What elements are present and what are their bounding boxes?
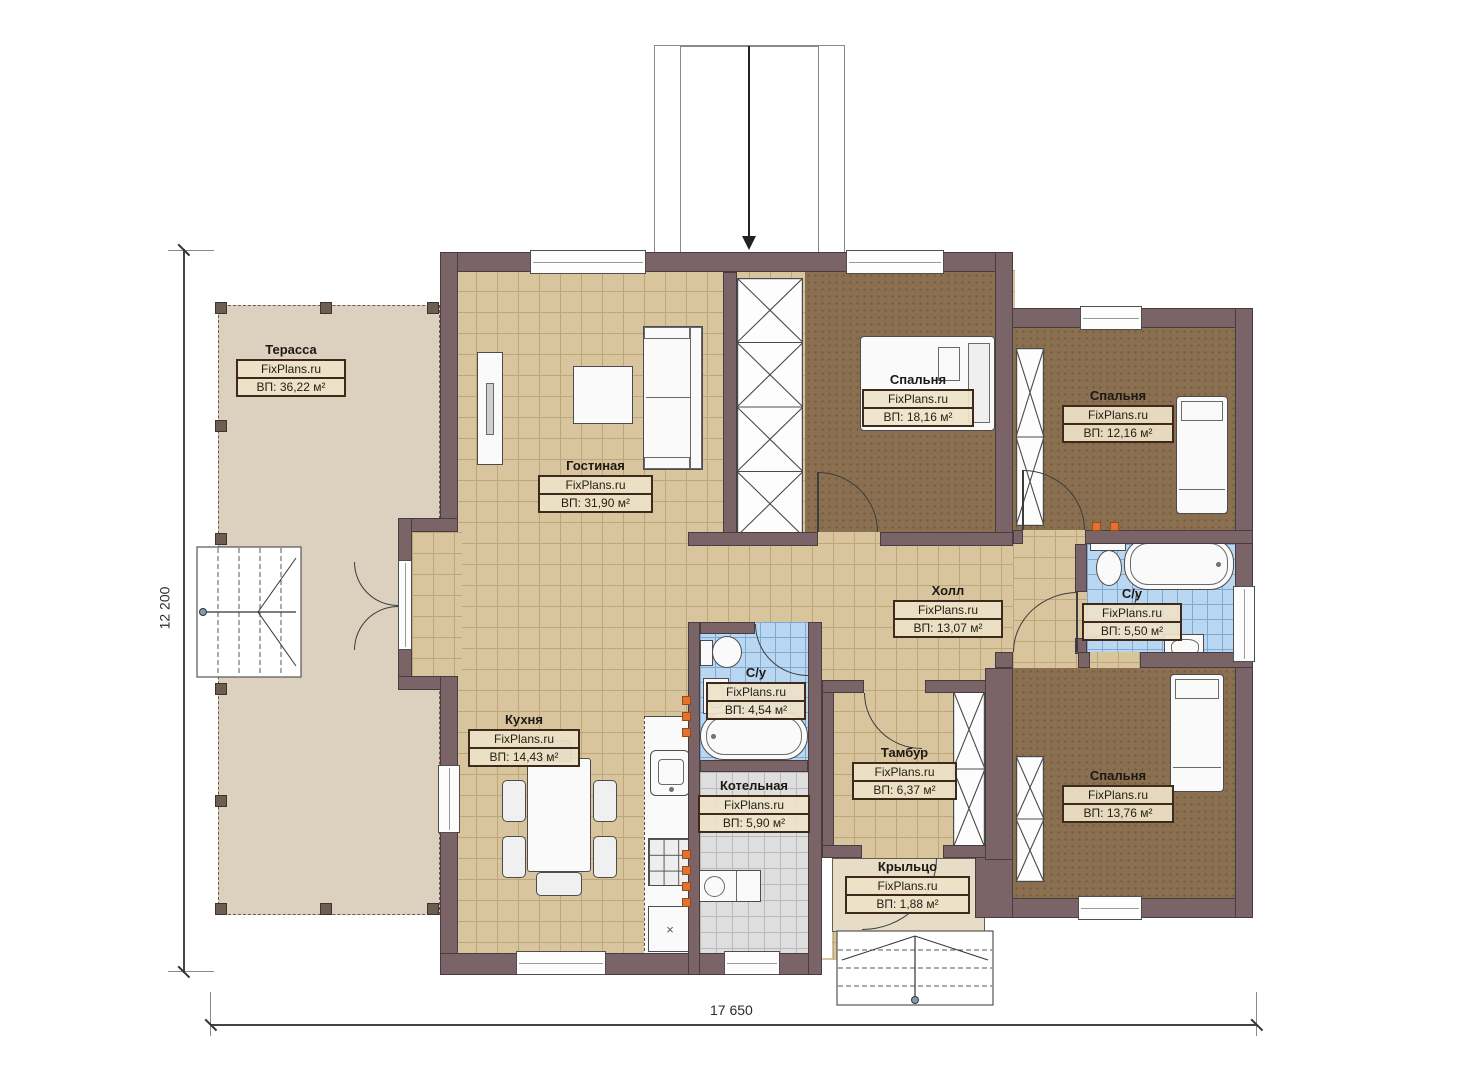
wall-left-upper: [440, 252, 458, 532]
wall-bedroom2-bottom-a: [1013, 530, 1023, 544]
entrance-arrow-icon: [742, 236, 756, 250]
terrace-post: [427, 903, 439, 915]
room-area: ВП: 18,16 м²: [862, 407, 974, 427]
room-brand: FixPlans.ru: [236, 359, 346, 379]
closet-bedroom3: [1016, 756, 1044, 882]
sofa: [643, 326, 703, 470]
wall-vestibule-top-b: [925, 680, 987, 693]
door-leaf: [1076, 592, 1078, 652]
room-label-kitchen: Кухня FixPlans.ru ВП: 14,43 м²: [468, 712, 580, 767]
window-bedroom2: [1080, 306, 1142, 330]
window-bedroom3: [1078, 896, 1142, 920]
room-label-bath2: С/у FixPlans.ru ВП: 4,54 м²: [706, 665, 806, 720]
canopy-column-left: [654, 45, 681, 257]
kitchen-unit-mark: ×: [666, 922, 674, 937]
room-label-bedroom3: Спальня FixPlans.ru ВП: 13,76 м²: [1062, 768, 1174, 823]
dimension-extension: [168, 971, 214, 972]
wall-vestibule-bottom-b: [943, 845, 987, 858]
window-kitchen: [516, 951, 606, 975]
closet-living: [737, 278, 803, 536]
dimension-label-width: 17 650: [710, 1002, 753, 1018]
window-kitchen-left: [438, 765, 460, 833]
wall-living-closet: [723, 272, 737, 538]
dimension-label-height: 12 200: [156, 587, 172, 630]
window-bedroom1: [846, 250, 944, 274]
terrace-post: [320, 903, 332, 915]
coffee-table: [573, 366, 633, 424]
terrace-post: [215, 302, 227, 314]
toilet-bowl: [1096, 550, 1122, 586]
room-area: ВП: 4,54 м²: [706, 700, 806, 720]
terrace-post: [215, 795, 227, 807]
room-brand: FixPlans.ru: [1062, 785, 1174, 805]
porch-steps: [836, 930, 994, 1006]
chair: [502, 836, 526, 878]
heating-marker: [682, 866, 691, 875]
toilet-bowl: [712, 636, 742, 668]
dimension-line-vertical: [183, 249, 185, 973]
terrace-door-frame: [398, 560, 412, 650]
wall-notch-left-a: [398, 518, 412, 562]
wall-bath2-top: [700, 622, 755, 634]
room-brand: FixPlans.ru: [706, 682, 806, 702]
room-label-boiler: Котельная FixPlans.ru ВП: 5,90 м²: [698, 778, 810, 833]
wall-bath1-left-a: [1075, 544, 1087, 592]
room-area: ВП: 6,37 м²: [852, 780, 957, 800]
heating-marker: [682, 728, 691, 737]
terrace-post: [427, 302, 439, 314]
room-brand: FixPlans.ru: [893, 600, 1003, 620]
chair: [593, 780, 617, 822]
terrace-post: [215, 420, 227, 432]
room-label-bedroom1: Спальня FixPlans.ru ВП: 18,16 м²: [862, 372, 974, 427]
stove: [648, 838, 692, 886]
room-brand: FixPlans.ru: [698, 795, 810, 815]
room-area: ВП: 36,22 м²: [236, 377, 346, 397]
room-label-bath1: С/у FixPlans.ru ВП: 5,50 м²: [1082, 586, 1182, 641]
terrace-post: [215, 903, 227, 915]
room-label-hall: Холл FixPlans.ru ВП: 13,07 м²: [893, 583, 1003, 638]
room-label-bedroom2: Спальня FixPlans.ru ВП: 12,16 м²: [1062, 388, 1174, 443]
room-name: Спальня: [1062, 768, 1174, 783]
room-name: Котельная: [698, 778, 810, 793]
wall-vestibule-bottom-a: [822, 845, 862, 858]
chair: [593, 836, 617, 878]
terrace-post: [215, 533, 227, 545]
chair: [536, 872, 582, 896]
room-area: ВП: 5,50 м²: [1082, 621, 1182, 641]
room-name: Терасса: [236, 342, 346, 357]
room-area: ВП: 12,16 м²: [1062, 423, 1174, 443]
closet-vestibule: [953, 690, 985, 848]
room-label-terrace: Терасса FixPlans.ru ВП: 36,22 м²: [236, 342, 346, 397]
kitchen-unit: ×: [648, 906, 692, 952]
room-brand: FixPlans.ru: [1062, 405, 1174, 425]
terrace-post: [320, 302, 332, 314]
room-area: ВП: 31,90 м²: [538, 493, 653, 513]
room-label-vestibule: Тамбур FixPlans.ru ВП: 6,37 м²: [852, 745, 957, 800]
room-area: ВП: 13,76 м²: [1062, 803, 1174, 823]
wall-bath2-boiler: [700, 760, 808, 772]
heating-marker: [1110, 522, 1119, 531]
dimension-extension: [1256, 992, 1257, 1036]
corridor-floor: [412, 532, 462, 676]
heating-marker: [682, 696, 691, 705]
room-name: Кухня: [468, 712, 580, 727]
room-brand: FixPlans.ru: [845, 876, 970, 896]
floor-plan: × Терасса: [0, 0, 1473, 1080]
heating-marker: [682, 850, 691, 859]
room-name: С/у: [1082, 586, 1182, 601]
chair: [502, 780, 526, 822]
window-boiler: [724, 951, 780, 975]
canopy-top-line: [681, 45, 818, 47]
kitchen-sink: [650, 750, 690, 796]
door-leaf: [817, 472, 819, 532]
room-name: Тамбур: [852, 745, 957, 760]
wall-bedroom3-top-b: [1078, 652, 1090, 668]
wall-hall-top-a: [688, 532, 818, 546]
room-label-living: Гостиная FixPlans.ru ВП: 31,90 м²: [538, 458, 653, 513]
room-brand: FixPlans.ru: [1082, 603, 1182, 623]
boiler-unit: [697, 870, 761, 902]
room-name: Спальня: [862, 372, 974, 387]
room-brand: FixPlans.ru: [468, 729, 580, 749]
wall-bedroom3-top-a: [995, 652, 1013, 668]
outside-patch: [822, 858, 832, 958]
room-area: ВП: 14,43 м²: [468, 747, 580, 767]
canopy-column-right: [818, 45, 845, 257]
bed-bedroom2: [1176, 396, 1228, 514]
heating-marker: [682, 898, 691, 907]
room-name: Крыльцо: [845, 859, 970, 874]
room-name: Холл: [893, 583, 1003, 598]
room-name: Спальня: [1062, 388, 1174, 403]
room-brand: FixPlans.ru: [852, 762, 957, 782]
heating-marker: [682, 712, 691, 721]
dimension-extension: [168, 250, 214, 251]
terrace-stairs: [196, 546, 302, 678]
room-brand: FixPlans.ru: [862, 389, 974, 409]
heating-marker: [1092, 522, 1101, 531]
room-name: С/у: [706, 665, 806, 680]
window-bath1: [1233, 586, 1255, 662]
wall-bath2-right: [808, 622, 822, 975]
wall-hall-top-b: [880, 532, 1013, 546]
door-leaf: [1022, 470, 1024, 530]
wall-bedroom3-left: [985, 668, 1013, 860]
entrance-direction-line: [748, 46, 750, 238]
room-label-porch: Крыльцо FixPlans.ru ВП: 1,88 м²: [845, 859, 970, 914]
heating-marker: [682, 882, 691, 891]
terrace-post: [215, 683, 227, 695]
wall-vestibule-top-a: [822, 680, 864, 693]
tv-stand: [477, 352, 503, 465]
dimension-extension: [210, 992, 211, 1036]
room-brand: FixPlans.ru: [538, 475, 653, 495]
room-area: ВП: 13,07 м²: [893, 618, 1003, 638]
wall-step: [995, 252, 1013, 544]
dimension-line-horizontal: [210, 1024, 1257, 1026]
wall-vestibule-left: [822, 680, 834, 858]
room-area: ВП: 1,88 м²: [845, 894, 970, 914]
room-area: ВП: 5,90 м²: [698, 813, 810, 833]
bed-bedroom3: [1170, 674, 1224, 792]
dining-table: [527, 758, 591, 872]
window-living: [530, 250, 646, 274]
wall-bedroom2-bottom-b: [1085, 530, 1253, 544]
bathtub-bath1: [1124, 538, 1234, 590]
room-name: Гостиная: [538, 458, 653, 473]
